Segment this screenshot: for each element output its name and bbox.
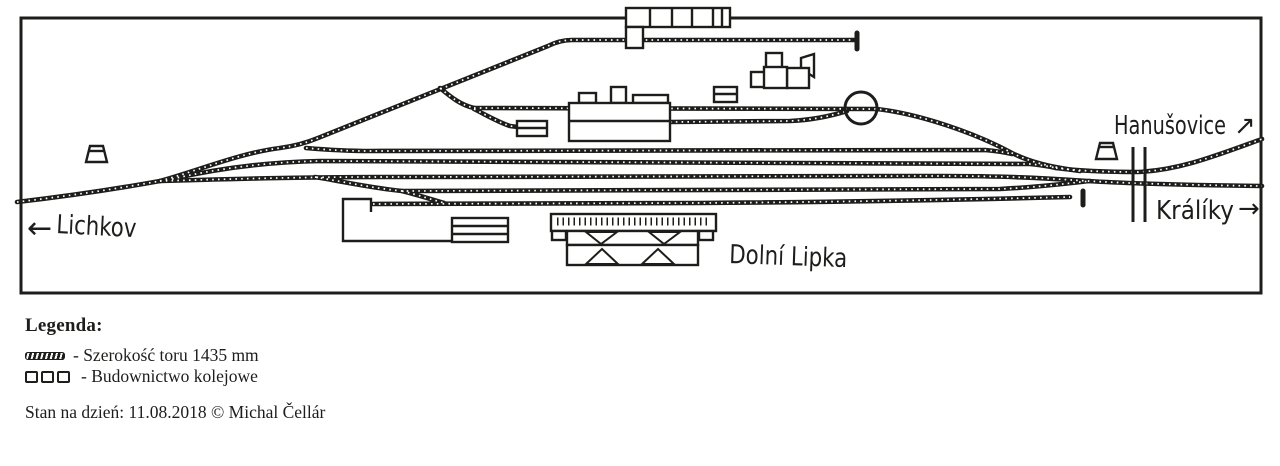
building-small-shed bbox=[517, 121, 547, 136]
building-square-icon bbox=[41, 371, 54, 383]
legend-item-buildings: - Budownictwo kolejowe bbox=[25, 366, 325, 387]
legend: Legenda: - Szerokość toru 1435 mm - Budo… bbox=[25, 315, 325, 423]
shed-roof-box-1 bbox=[579, 93, 596, 103]
warehouse-body bbox=[452, 218, 508, 242]
station-complex bbox=[551, 214, 716, 265]
legend-item-track-gauge: - Szerokość toru 1435 mm bbox=[25, 345, 325, 366]
signal-east-body bbox=[1096, 143, 1117, 159]
cluster-center bbox=[764, 67, 787, 88]
building-square-icon bbox=[57, 371, 70, 383]
status-line: Stan na dzień: 11.08.2018 © Michal Čellá… bbox=[25, 402, 325, 423]
cluster-right bbox=[787, 68, 809, 88]
label-kraliky: Králíky bbox=[1156, 196, 1234, 226]
building-warehouse bbox=[452, 218, 508, 242]
cluster-top bbox=[766, 53, 782, 68]
signal-west-body bbox=[86, 146, 107, 162]
platform-notch-right bbox=[699, 231, 713, 240]
shed-roof-box-2 bbox=[611, 87, 626, 103]
label-lichkov: Lichkov bbox=[56, 210, 137, 244]
platform bbox=[551, 214, 716, 231]
signal-west-icon bbox=[86, 146, 107, 162]
track-gauge-symbol-icon bbox=[25, 352, 65, 360]
label-station-name: Dolní Lipka bbox=[729, 240, 848, 274]
label-hanusovice: Hanušovice bbox=[1114, 111, 1226, 141]
hanusovice-arrow-icon: ↗ bbox=[1234, 111, 1256, 141]
building-small-hut bbox=[714, 87, 737, 102]
legend-heading: Legenda: bbox=[25, 315, 325, 337]
building-engine-shed bbox=[569, 87, 670, 141]
track-diagram: ← Lichkov Hanušovice ↗ Králíky → Dolní L… bbox=[0, 0, 1280, 300]
building-top-body bbox=[626, 8, 730, 27]
legend-item-label: - Szerokość toru 1435 mm bbox=[73, 345, 259, 366]
railway-buildings-symbol-icon bbox=[25, 371, 73, 383]
track-gauge-bar bbox=[25, 352, 65, 360]
station-building-lower bbox=[567, 245, 698, 265]
track-diagram-page: ← Lichkov Hanušovice ↗ Králíky → Dolní L… bbox=[0, 0, 1280, 466]
platform-notch-left bbox=[552, 231, 566, 240]
signal-east-icon bbox=[1096, 143, 1117, 159]
building-top-annex bbox=[626, 27, 643, 48]
kraliky-arrow-icon: → bbox=[1238, 194, 1260, 224]
lichkov-arrow-icon: ← bbox=[27, 211, 52, 246]
building-square-icon bbox=[25, 371, 38, 383]
legend-item-label: - Budownictwo kolejowe bbox=[81, 366, 258, 387]
